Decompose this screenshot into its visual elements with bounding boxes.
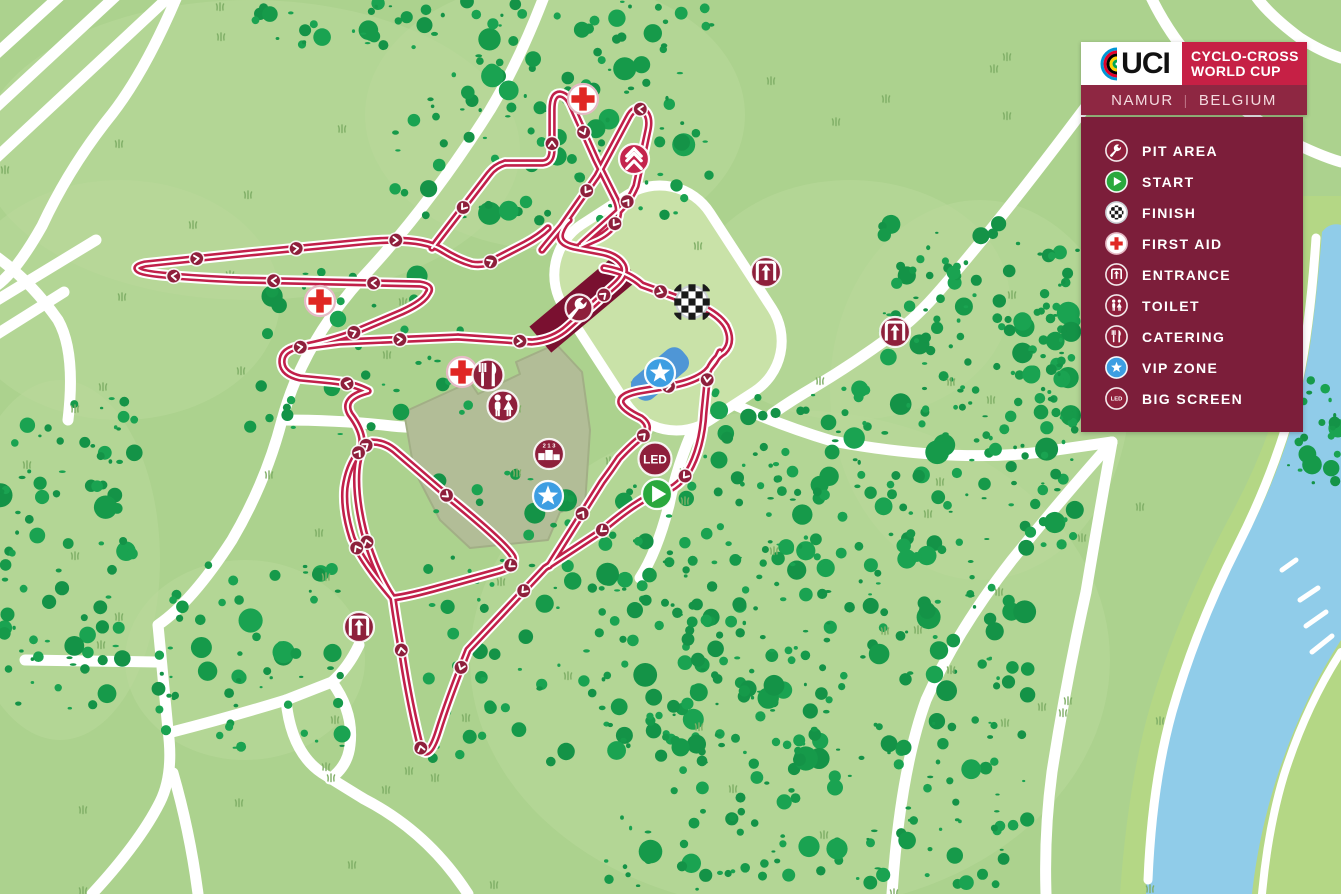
- course-arrow: [512, 334, 527, 349]
- svg-text:LED: LED: [643, 452, 667, 466]
- marker-first-aid: [305, 286, 335, 316]
- man-woman-icon: [1104, 293, 1129, 318]
- legend-item-first-aid: FIRST AID: [1081, 228, 1303, 259]
- marker-finish: [674, 284, 709, 319]
- uci-brand-block: UCI CYCLO-CROSS WORLD CUP NAMUR | BELGIU…: [1081, 42, 1307, 115]
- checkered-icon: [1104, 200, 1129, 225]
- marker-start: [642, 479, 672, 509]
- legend-label: PIT AREA: [1142, 143, 1218, 159]
- play-icon: [1104, 169, 1129, 194]
- course-arrow: [699, 372, 715, 388]
- marker-catering: [473, 360, 504, 391]
- legend-label: FINISH: [1142, 205, 1196, 221]
- uci-logo: UCI: [1081, 42, 1182, 85]
- marker-vip: [533, 481, 563, 511]
- location-separator: |: [1184, 92, 1189, 108]
- legend-label: VIP ZONE: [1142, 360, 1218, 376]
- legend-item-catering: CATERING: [1081, 321, 1303, 352]
- course-arrow: [292, 339, 308, 355]
- event-line2: WORLD CUP: [1191, 64, 1307, 79]
- marker-entrance: [880, 317, 910, 347]
- map-legend-panel: PIT AREA START FINISH FIRST AID ENTRANCE…: [1081, 117, 1303, 432]
- legend-label: START: [1142, 174, 1195, 190]
- event-line1: CYCLO-CROSS: [1191, 49, 1307, 64]
- legend-item-vip-zone: VIP ZONE: [1081, 352, 1303, 383]
- legend-item-entrance: ENTRANCE: [1081, 259, 1303, 290]
- course-arrow: [166, 268, 182, 284]
- legend-label: TOILET: [1142, 298, 1200, 314]
- marker-entrance: [344, 612, 374, 642]
- legend-item-finish: FINISH: [1081, 197, 1303, 228]
- marker-pit: [566, 295, 593, 322]
- star-icon: [1104, 355, 1129, 380]
- course-arrow: [545, 136, 559, 150]
- wrench-icon: [1104, 138, 1129, 163]
- country-name: BELGIUM: [1199, 92, 1277, 109]
- legend-item-big-screen: LED BIG SCREEN: [1081, 383, 1303, 414]
- legend-label: ENTRANCE: [1142, 267, 1231, 283]
- course-arrow: [392, 332, 407, 347]
- marker-first-aid: [568, 84, 598, 114]
- legend-item-start: START: [1081, 166, 1303, 197]
- marker-toilet: [488, 391, 519, 422]
- led-icon: LED: [1104, 386, 1129, 411]
- marker-vip: [645, 358, 675, 388]
- legend-label: CATERING: [1142, 329, 1225, 345]
- marker-climb: [619, 144, 649, 174]
- legend-label: BIG SCREEN: [1142, 391, 1243, 407]
- course-arrow: [288, 241, 304, 257]
- marker-podium: 2 1 3: [534, 439, 564, 469]
- fork-knife-icon: [1104, 324, 1129, 349]
- svg-text:2 1 3: 2 1 3: [543, 444, 556, 450]
- location-name: NAMUR: [1111, 92, 1174, 109]
- event-title: CYCLO-CROSS WORLD CUP: [1182, 42, 1307, 85]
- location-bar: NAMUR | BELGIUM: [1081, 85, 1307, 115]
- course-arrow: [633, 101, 648, 116]
- course-arrow: [366, 276, 381, 291]
- legend-label: FIRST AID: [1142, 236, 1223, 252]
- marker-entrance: [751, 257, 781, 287]
- course-arrow: [266, 273, 281, 288]
- legend-item-toilet: TOILET: [1081, 290, 1303, 321]
- course-arrow: [189, 251, 205, 267]
- course-map-poster: 2 1 3 LED UCI CYCLO-CROSS WORLD CUP NAMU…: [0, 0, 1341, 894]
- uci-rainbow-icon: [1093, 47, 1119, 81]
- uci-wordmark: UCI: [1121, 49, 1170, 79]
- marker-big-screen: LED: [639, 443, 672, 476]
- legend-item-pit-area: PIT AREA: [1081, 135, 1303, 166]
- course-arrow: [388, 233, 403, 248]
- door-arrow-icon: [1104, 262, 1129, 287]
- svg-text:LED: LED: [1111, 397, 1123, 403]
- red-cross-icon: [1104, 231, 1129, 256]
